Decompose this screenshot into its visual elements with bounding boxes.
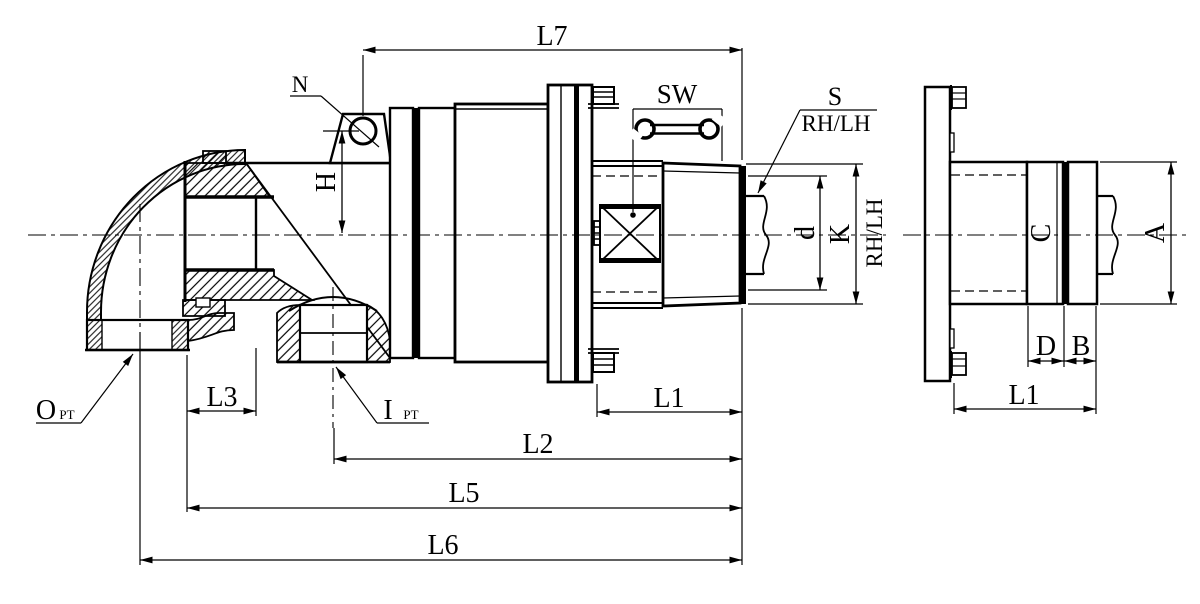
label-sw-text: SW (657, 79, 698, 109)
dim-label-c: C (1026, 224, 1057, 243)
dim-label-a: A (1140, 222, 1171, 243)
dimension-l5: L5 (187, 478, 742, 509)
label-outlet-port: O PT (36, 354, 133, 426)
flange-inner-band (574, 85, 579, 382)
label-rhlh-text: RH/LH (802, 111, 871, 136)
label-n-text: N (292, 72, 309, 97)
flange-plate (548, 85, 592, 382)
inlet-port-wall-right (367, 305, 390, 362)
dim-label-l6: L6 (427, 530, 458, 561)
inlet-port-wall-left (277, 305, 300, 362)
label-rotation-hand: RH/LH (862, 199, 887, 268)
drawing-canvas: L7 N H SW (0, 0, 1200, 604)
technical-drawing: L7 N H SW (0, 0, 1200, 604)
dimension-l1: L1 (597, 383, 742, 417)
label-i-text: I (383, 395, 392, 426)
mounting-flange (548, 85, 592, 382)
dim-label-k: K (825, 224, 856, 244)
dim-label-side-d: D (1036, 331, 1056, 362)
housing-bottom-band (185, 270, 312, 300)
dim-label-h: H (311, 172, 342, 192)
side-bolt-top (951, 85, 966, 110)
dim-label-l5: L5 (448, 478, 479, 509)
side-body-cylinder (950, 162, 1027, 304)
label-inlet-port: I PT (336, 367, 429, 426)
dim-label-side-l1: L1 (1008, 380, 1039, 411)
housing-top-tab (203, 151, 226, 163)
plate-step-bottom (950, 329, 954, 348)
housing-step-notch (196, 298, 210, 307)
dim-label-l7: L7 (536, 21, 567, 52)
label-o-sub: PT (59, 407, 74, 422)
bolt-top (588, 87, 619, 108)
housing-barrel (455, 104, 548, 362)
label-s-text: S (828, 82, 842, 111)
elbow-hub-wall-right (172, 320, 188, 350)
dimension-a: A (1100, 162, 1177, 304)
label-o-text: O (36, 395, 56, 426)
dimension-d-b: D B (1028, 306, 1096, 367)
dimension-l2: L2 (334, 428, 742, 464)
dim-label-l3: L3 (206, 382, 237, 413)
dimension-l3: L3 (187, 348, 256, 512)
plate-step-top (950, 133, 954, 152)
dim-label-side-b: B (1072, 331, 1091, 362)
body-cylinder (390, 104, 548, 362)
dimension-side-l1: L1 (954, 367, 1096, 414)
bearing-box (600, 205, 660, 262)
dim-label-d: d (790, 226, 821, 240)
elbow-hub-wall-left (87, 320, 102, 350)
eyebolt-lug (330, 114, 391, 163)
label-i-sub: PT (403, 407, 418, 422)
side-flange-plate (925, 87, 950, 381)
side-section-b (1068, 162, 1097, 304)
housing-top-band (185, 163, 270, 197)
leader-dot (630, 212, 636, 218)
dim-label-l1: L1 (653, 383, 684, 414)
bolt-bottom (588, 349, 619, 372)
rotor-housing (183, 151, 391, 362)
side-bolt-bottom (951, 351, 966, 378)
dim-label-l2: L2 (522, 429, 553, 460)
gooseneck-wall (188, 313, 234, 341)
label-n: N (290, 72, 379, 147)
wrench-icon (628, 112, 727, 142)
seal-band-2 (419, 108, 455, 358)
main-view (85, 85, 769, 382)
seal-band-1 (390, 108, 413, 358)
